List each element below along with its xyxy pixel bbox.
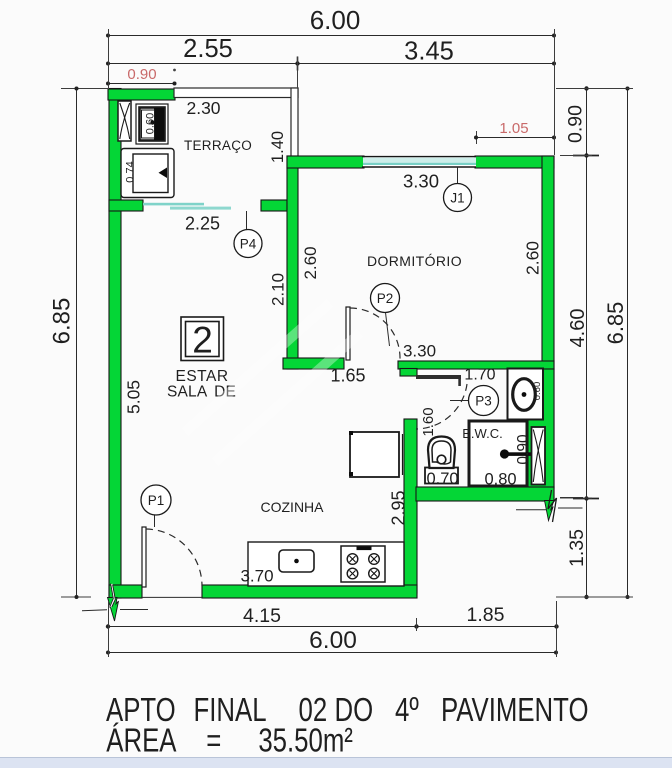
svg-text:0.80: 0.80 <box>484 471 516 489</box>
svg-text:0.90: 0.90 <box>565 105 587 143</box>
svg-text:P2: P2 <box>377 291 394 306</box>
svg-text:2: 2 <box>192 320 213 361</box>
svg-text:0.74: 0.74 <box>125 161 137 182</box>
svg-text:1.70: 1.70 <box>464 367 495 384</box>
svg-text:6.85: 6.85 <box>603 302 628 345</box>
svg-text:2.55: 2.55 <box>183 35 233 63</box>
svg-text:1.40: 1.40 <box>269 131 287 163</box>
svg-text:TERRAÇO: TERRAÇO <box>184 138 252 153</box>
svg-text:0.70: 0.70 <box>426 470 458 488</box>
svg-text:P4: P4 <box>240 237 257 252</box>
svg-text:5.05: 5.05 <box>124 380 144 414</box>
svg-text:COZINHA: COZINHA <box>261 499 325 515</box>
svg-text:1.60: 1.60 <box>420 407 437 436</box>
svg-text:DORMITÓRIO: DORMITÓRIO <box>367 253 462 269</box>
svg-text:2.25: 2.25 <box>185 214 220 234</box>
svg-text:0.90: 0.90 <box>515 434 532 465</box>
svg-text:1.65: 1.65 <box>330 366 365 386</box>
svg-text:3.70: 3.70 <box>240 567 273 586</box>
svg-text:0.90: 0.90 <box>127 66 156 83</box>
svg-text:1.35: 1.35 <box>566 529 588 567</box>
svg-text:P3: P3 <box>475 394 492 409</box>
svg-text:6.85: 6.85 <box>49 298 76 345</box>
svg-text:0.60: 0.60 <box>145 113 157 134</box>
svg-text:6.00: 6.00 <box>310 5 361 35</box>
svg-text:P1: P1 <box>148 493 165 508</box>
svg-text:2.60: 2.60 <box>523 241 543 275</box>
svg-text:1.85: 1.85 <box>467 604 505 626</box>
svg-text:4.15: 4.15 <box>243 605 281 627</box>
svg-text:0.60: 0.60 <box>532 382 543 401</box>
svg-text:2.95: 2.95 <box>389 490 409 525</box>
svg-text:3.30: 3.30 <box>403 171 439 192</box>
svg-text:3.30: 3.30 <box>403 342 436 361</box>
svg-text:3.45: 3.45 <box>404 38 454 66</box>
svg-text:2.60: 2.60 <box>301 246 320 279</box>
svg-text:2.30: 2.30 <box>186 98 220 118</box>
svg-text:2.10: 2.10 <box>269 273 288 306</box>
svg-text:B.W.C.: B.W.C. <box>462 426 502 441</box>
svg-text:1.05: 1.05 <box>499 120 528 137</box>
svg-text:ESTAR: ESTAR <box>175 368 228 385</box>
svg-text:6.00: 6.00 <box>309 627 357 654</box>
svg-text:J1: J1 <box>450 191 464 206</box>
svg-text:4.60: 4.60 <box>567 309 589 348</box>
